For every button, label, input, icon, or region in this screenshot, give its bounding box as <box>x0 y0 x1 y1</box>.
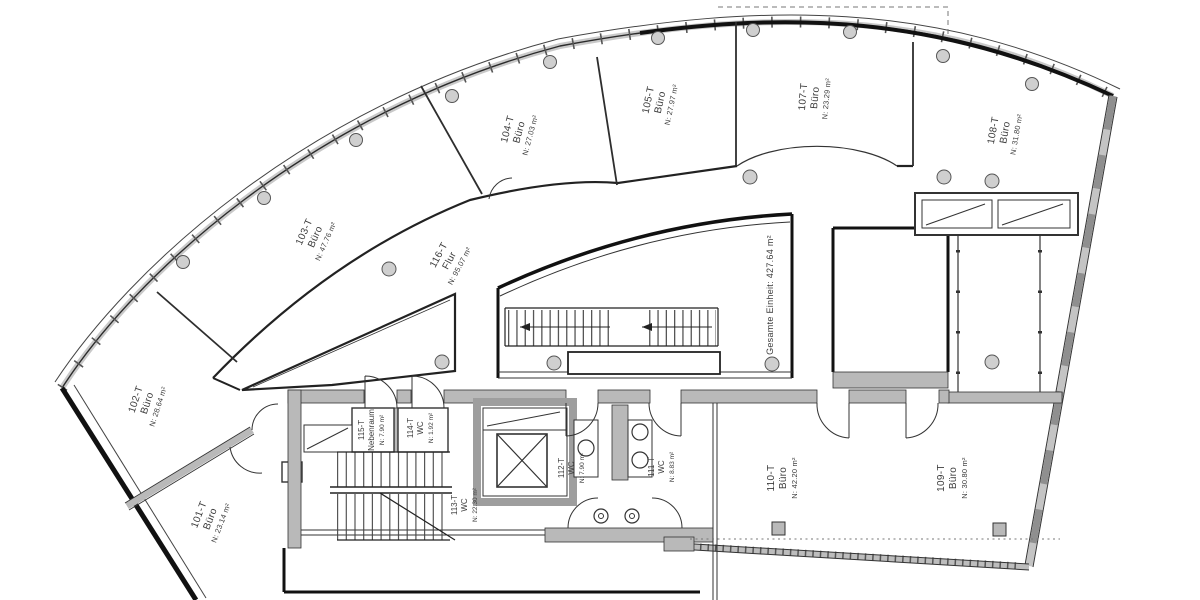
room-115-id: 115-T <box>357 420 366 440</box>
room-label-113: 113-T WC N: 22.30 m² <box>450 487 479 522</box>
corridor-outer-wall <box>213 146 913 390</box>
room-107-area: N: 23.29 m² <box>820 77 833 119</box>
room-111-area: N: 8.83 m² <box>669 451 676 482</box>
room-label-102: 102-T Büro N: 28.64 m² <box>125 378 169 428</box>
room-label-110: 110-T Büro N: 42.20 m² <box>766 457 799 499</box>
corridor-wedge <box>242 294 455 390</box>
room-115-area: N: 7.90 m² <box>379 414 386 445</box>
room-label-108: 108-T Büro N: 31.80 m² <box>985 109 1025 156</box>
room-113-name: WC <box>460 498 469 512</box>
room-114-area: N: 1.92 m² <box>428 412 435 443</box>
room-115-name: Nebenraum <box>367 409 376 451</box>
facade-left-lower <box>62 385 206 600</box>
room-label-103: 103-T Büro N: 47.76 m² <box>291 211 338 263</box>
room-112-area: N: 7.90 m² <box>579 452 586 483</box>
room-111-id: 111-T <box>647 457 656 477</box>
unit-total-label: Gesamte Einheit: 427.64 m² <box>765 235 775 355</box>
room-109-name: Büro <box>948 467 959 489</box>
room-112-id: 112-T <box>557 458 566 478</box>
room-label-116: 116-T Flur N: 95.07 m² <box>425 234 474 286</box>
room-114-id: 114-T <box>406 418 415 438</box>
room-114-name: WC <box>416 421 425 435</box>
room-115-114-walls <box>304 408 448 452</box>
room-labels: 101-T Büro N: 23.14 m² 102-T Büro N: 28.… <box>125 75 1025 544</box>
room-label-105: 105-T Büro N: 27.97 m² <box>639 78 680 126</box>
room-label-109: 109-T Büro N: 30.80 m² <box>936 457 969 499</box>
facade-bottom-right <box>678 543 1029 570</box>
central-stair <box>505 306 720 374</box>
inner-room-right <box>833 228 948 388</box>
room-110-id: 110-T <box>766 465 777 492</box>
room-113-id: 113-T <box>450 495 459 515</box>
floor-plan-svg: 101-T Büro N: 23.14 m² 102-T Büro N: 28.… <box>0 0 1200 600</box>
columns <box>177 24 1039 372</box>
room-label-101: 101-T Büro N: 23.14 m² <box>187 493 233 544</box>
room-109-area: N: 30.80 m² <box>960 457 969 499</box>
floor-plan-page: 101-T Büro N: 23.14 m² 102-T Büro N: 28.… <box>0 0 1200 600</box>
room-label-104: 104-T Büro N: 27.03 m² <box>497 108 540 157</box>
room-110-area: N: 42.20 m² <box>790 457 799 499</box>
room-110-name: Büro <box>778 467 789 489</box>
elevator <box>477 402 573 502</box>
glass-partition-lines <box>948 235 1062 403</box>
stair-113 <box>330 452 455 540</box>
room-113-area: N: 22.30 m² <box>472 487 479 522</box>
room-109-id: 109-T <box>936 464 947 492</box>
room-partitions <box>157 22 913 362</box>
room-107-name: Büro <box>809 86 822 109</box>
room-111-name: WC <box>657 460 666 474</box>
room-label-107: 107-T Büro N: 23.29 m² <box>796 75 833 119</box>
cabinet-row <box>915 193 1078 235</box>
room-112-name: WC <box>567 461 576 475</box>
unit-total-text: Gesamte Einheit: 427.64 m² <box>765 235 775 355</box>
reference-dotted-line <box>690 522 1060 539</box>
